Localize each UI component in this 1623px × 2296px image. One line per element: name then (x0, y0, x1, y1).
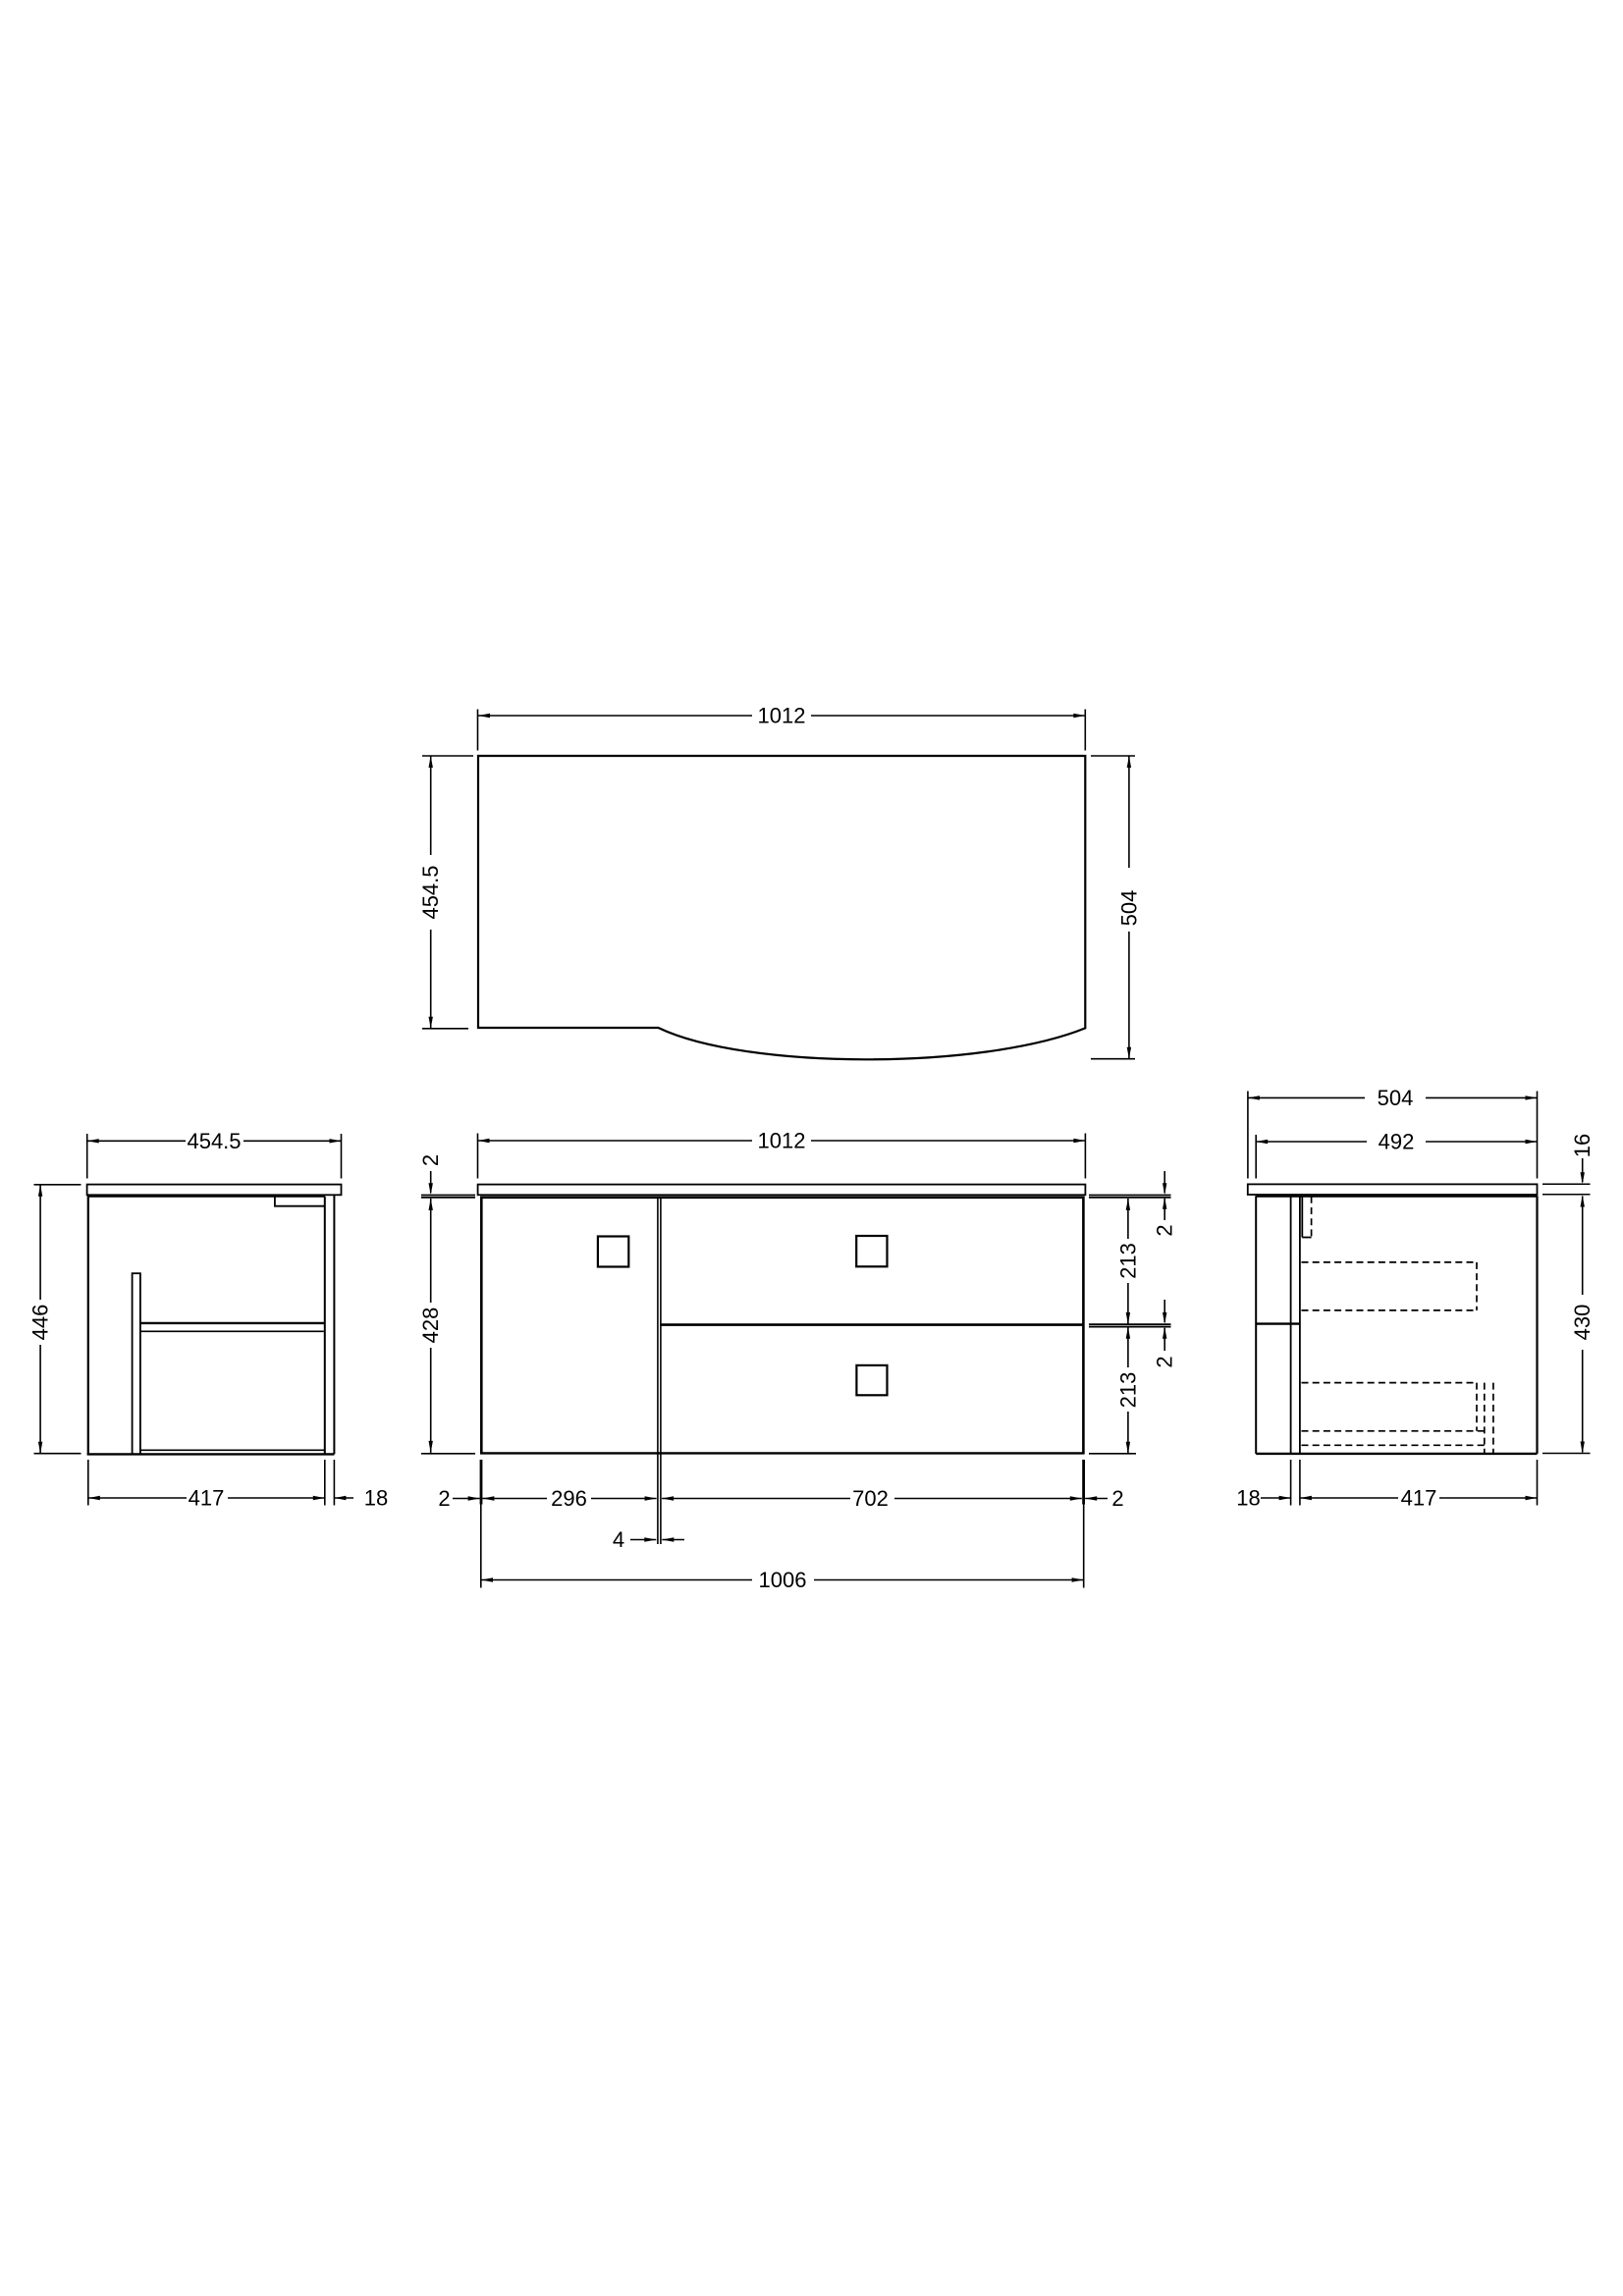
svg-text:504: 504 (1378, 1086, 1414, 1110)
svg-text:428: 428 (418, 1308, 443, 1344)
svg-text:213: 213 (1115, 1372, 1140, 1409)
svg-text:16: 16 (1570, 1134, 1595, 1157)
svg-text:446: 446 (28, 1305, 53, 1341)
svg-text:2: 2 (438, 1486, 450, 1511)
svg-text:18: 18 (364, 1486, 388, 1511)
svg-text:454.5: 454.5 (418, 865, 443, 919)
svg-text:504: 504 (1116, 890, 1141, 927)
svg-text:1012: 1012 (758, 704, 806, 728)
svg-text:213: 213 (1115, 1243, 1140, 1279)
svg-text:702: 702 (852, 1486, 889, 1511)
svg-text:296: 296 (551, 1486, 587, 1511)
svg-text:430: 430 (1570, 1305, 1595, 1341)
svg-text:417: 417 (189, 1486, 225, 1511)
svg-text:1012: 1012 (758, 1129, 806, 1153)
svg-text:2: 2 (1153, 1224, 1177, 1236)
svg-text:454.5: 454.5 (187, 1129, 241, 1153)
svg-text:417: 417 (1401, 1486, 1437, 1511)
svg-text:18: 18 (1236, 1486, 1260, 1511)
svg-text:4: 4 (613, 1527, 624, 1552)
svg-text:2: 2 (418, 1154, 443, 1166)
svg-text:2: 2 (1111, 1486, 1123, 1511)
svg-text:492: 492 (1379, 1130, 1415, 1154)
svg-text:1006: 1006 (759, 1568, 807, 1592)
svg-text:2: 2 (1153, 1356, 1177, 1367)
